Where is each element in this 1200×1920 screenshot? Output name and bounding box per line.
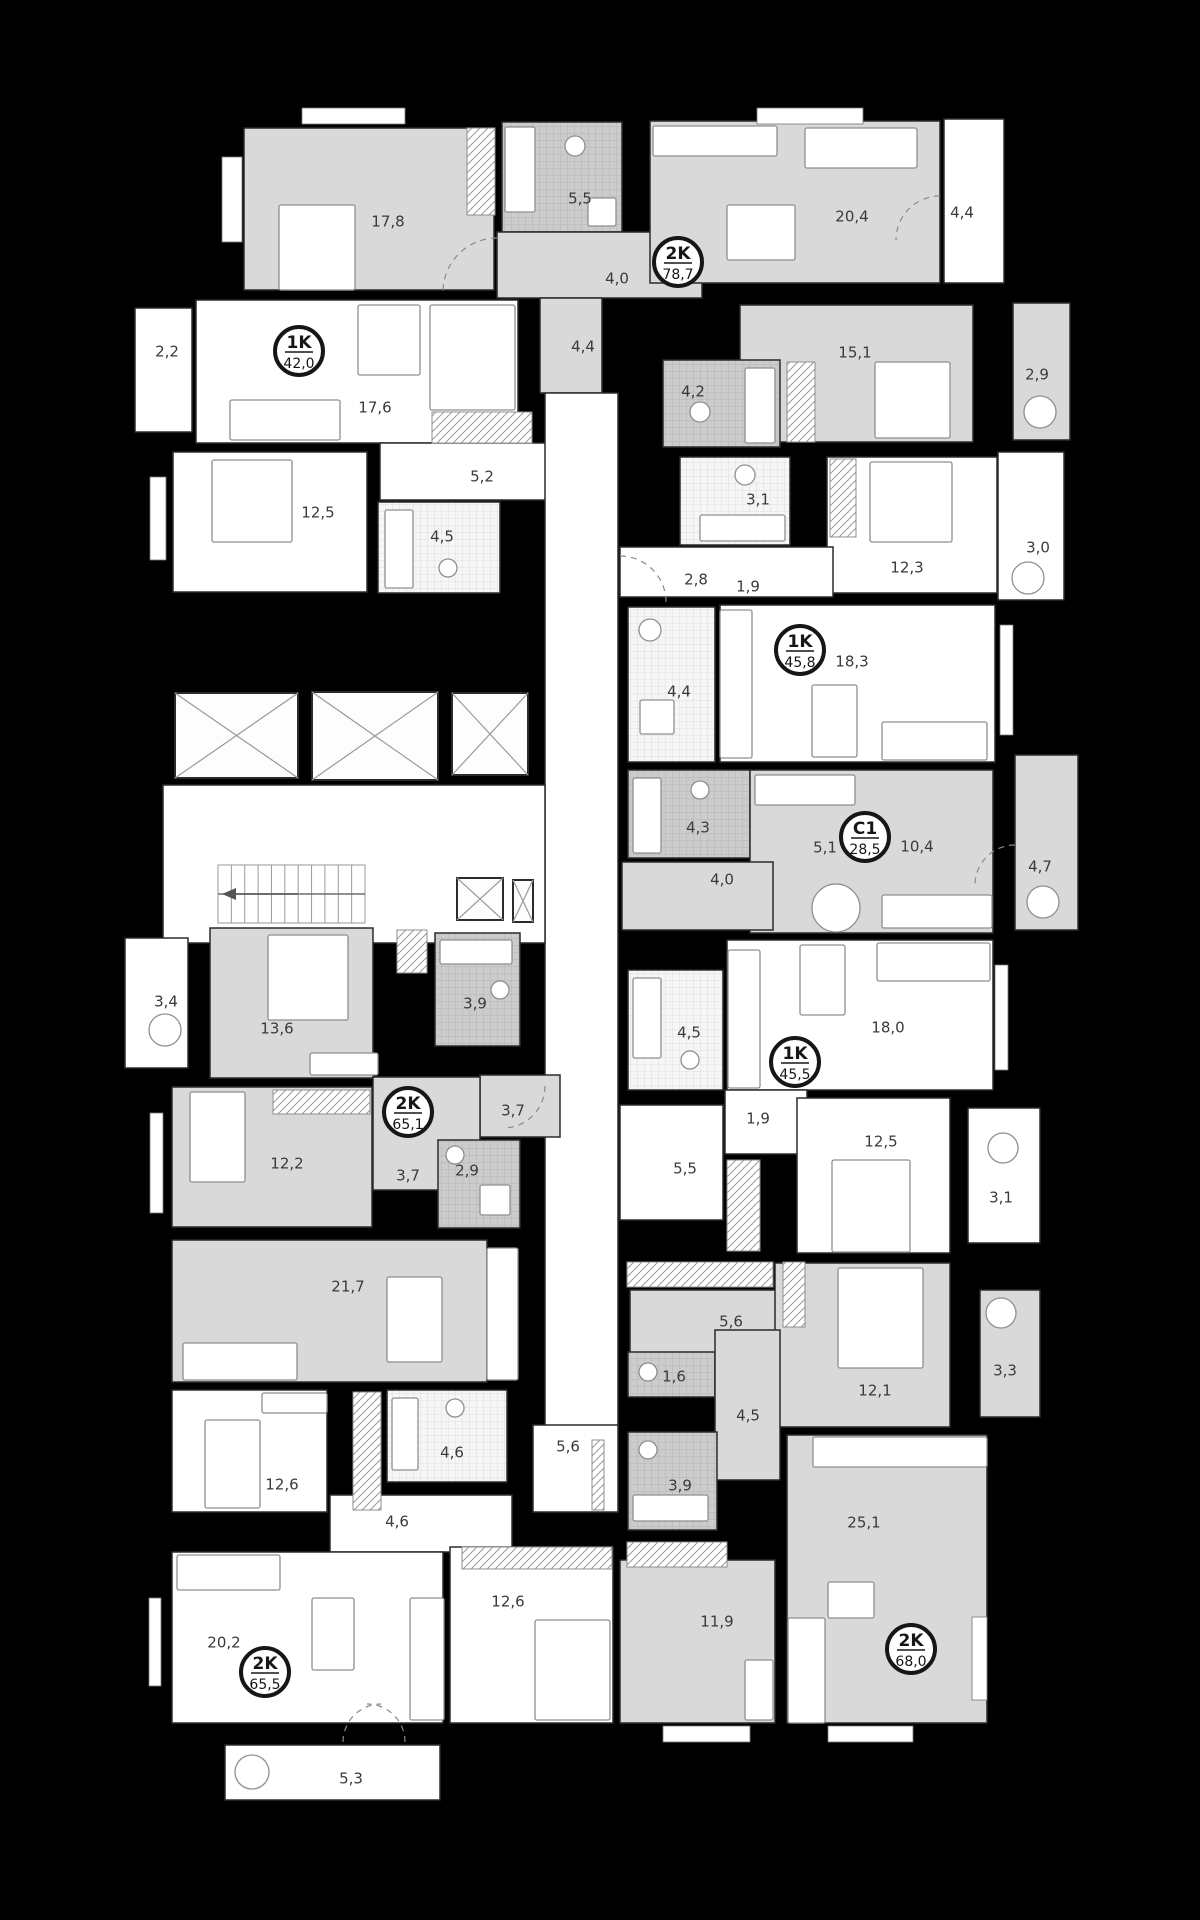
room-area-label: 2,2 [155,343,179,361]
furniture [870,462,952,542]
room-area-label: 3,9 [463,995,487,1013]
badge-area: 65,5 [249,1677,280,1693]
furniture [633,978,661,1058]
wardrobe [432,412,532,443]
furniture [640,700,674,734]
furniture [588,198,616,226]
furniture [480,1185,510,1215]
room-area-label: 4,4 [667,683,691,701]
wardrobe [462,1547,612,1569]
badge-area: 45,5 [779,1067,810,1083]
furniture [745,1660,773,1720]
furniture [639,1441,657,1459]
room-area-label: 5,6 [719,1313,743,1331]
room-area-label: 3,1 [746,491,770,509]
room-area-label: 4,5 [736,1407,760,1425]
apartment-badge: C128,5 [841,813,889,861]
apartment-badge: 2K68,0 [887,1625,935,1673]
room-area-label: 5,5 [673,1160,697,1178]
window [1000,625,1013,735]
room-area-label: 12,2 [270,1155,303,1173]
window [149,1598,161,1686]
room-area-label: 18,3 [835,653,868,671]
window [757,108,863,124]
room-area-label: 2,9 [455,1162,479,1180]
room-area-label: 3,3 [993,1362,1017,1380]
furniture [838,1268,923,1368]
room-area-label: 5,5 [568,190,592,208]
wardrobe [627,1542,727,1567]
furniture [1027,886,1059,918]
hall-4-0b [622,862,773,930]
room-area-label: 13,6 [260,1020,293,1038]
hall-5-5 [620,1105,723,1220]
floor-plan-canvas: 17,85,54,020,44,44,415,12,94,22,217,612,… [0,0,1200,1920]
room-area-label: 4,4 [571,338,595,356]
wardrobe [830,459,856,537]
badge-type: 1K [286,333,312,353]
badge-type: 1K [782,1044,808,1064]
wardrobe [783,1262,805,1327]
furniture [988,1133,1018,1163]
room-area-label: 4,0 [710,871,734,889]
room-area-label: 12,5 [301,504,334,522]
furniture [387,1277,442,1362]
furniture [653,126,777,156]
balcony-2-2 [135,308,192,432]
furniture [828,1582,874,1618]
room-area-label: 5,1 [813,839,837,857]
furniture [727,205,795,260]
room-area-label: 1,9 [746,1110,770,1128]
room-area-label: 2,8 [684,571,708,589]
room-area-label: 2,9 [1025,366,1049,384]
furniture [633,1495,708,1521]
furniture [491,981,509,999]
wardrobe [273,1090,370,1114]
wardrobe [627,1262,773,1287]
room-area-label: 12,5 [864,1133,897,1151]
furniture [720,610,752,758]
furniture [212,460,292,542]
room-area-label: 3,9 [668,1477,692,1495]
floor-plan: 17,85,54,020,44,44,415,12,94,22,217,612,… [0,0,1200,1920]
apartment-badge: 2K65,5 [241,1648,289,1696]
room-area-label: 1,9 [736,578,760,596]
furniture [813,1437,987,1467]
hall-4-5 [715,1330,780,1480]
room-area-label: 4,0 [605,270,629,288]
room-area-label: 17,6 [358,399,391,417]
room-area-label: 4,5 [677,1024,701,1042]
room-area-label: 4,2 [681,383,705,401]
badge-area: 68,0 [895,1654,926,1670]
furniture [235,1755,269,1789]
badge-area: 42,0 [283,356,314,372]
room-area-label: 3,0 [1026,539,1050,557]
furniture [149,1014,181,1046]
window [150,1113,163,1213]
furniture [177,1555,280,1590]
room-area-label: 15,1 [838,344,871,362]
apartment-badge: 1K42,0 [275,327,323,375]
furniture [728,950,760,1088]
window [828,1726,913,1742]
furniture [986,1298,1016,1328]
furniture [690,402,710,422]
furniture [565,136,585,156]
furniture [446,1399,464,1417]
window [663,1726,750,1742]
furniture [691,781,709,799]
room-area-label: 11,9 [700,1613,733,1631]
furniture [681,1051,699,1069]
furniture [205,1420,260,1508]
furniture [312,1598,354,1670]
furniture [268,935,348,1020]
furniture [190,1092,245,1182]
room-area-label: 4,7 [1028,858,1052,876]
wardrobe [353,1392,381,1510]
corridor [545,393,618,1512]
entry-2-8 [620,547,833,597]
hall-5-2 [380,443,548,500]
furniture [392,1398,418,1470]
furniture [505,127,535,212]
room-area-label: 18,0 [871,1019,904,1037]
furniture [439,559,457,577]
wardrobe [727,1160,760,1251]
room-area-label: 10,4 [900,838,933,856]
furniture [487,1248,518,1380]
furniture [262,1393,327,1413]
furniture [700,515,785,541]
room-area-label: 3,7 [396,1167,420,1185]
furniture [230,400,340,440]
badge-type: 2K [665,244,691,264]
furniture [877,943,990,981]
room-area-label: 12,6 [491,1593,524,1611]
badge-area: 28,5 [849,842,880,858]
furniture [633,778,661,853]
apartment-badge: 1K45,5 [771,1038,819,1086]
room-area-label: 1,6 [662,1368,686,1386]
furniture [882,895,992,928]
window [222,157,242,242]
apartment-badge: 1K45,8 [776,626,824,674]
furniture [800,945,845,1015]
room-area-label: 4,4 [950,204,974,222]
room-area-label: 25,1 [847,1514,880,1532]
furniture [639,619,661,641]
furniture [832,1160,910,1252]
window [150,477,166,560]
badge-type: 2K [898,1631,924,1651]
furniture [875,362,950,438]
room-area-label: 4,3 [686,819,710,837]
furniture [358,305,420,375]
room-area-label: 4,6 [440,1444,464,1462]
room-area-label: 5,2 [470,468,494,486]
furniture [882,722,987,760]
furniture [812,685,857,757]
balcony-3-1 [968,1108,1040,1243]
wardrobe [397,930,427,973]
furniture [440,940,512,964]
room-area-label: 5,6 [556,1438,580,1456]
room-area-label: 3,4 [154,993,178,1011]
window [302,108,405,124]
room-area-label: 20,4 [835,208,868,226]
furniture [385,510,413,588]
furniture [430,305,515,410]
furniture [745,368,775,443]
furniture [735,465,755,485]
room-area-label: 12,3 [890,559,923,577]
room-area-label: 4,5 [430,528,454,546]
wardrobe [467,128,495,215]
furniture [755,775,855,805]
furniture [1024,396,1056,428]
badge-type: C1 [853,819,877,839]
balcony-4-4 [944,119,1004,283]
room-area-label: 3,7 [501,1102,525,1120]
furniture [279,205,355,290]
furniture [1012,562,1044,594]
furniture [788,1618,825,1723]
room-area-label: 4,6 [385,1513,409,1531]
furniture [183,1343,297,1380]
room-area-label: 5,3 [339,1770,363,1788]
badge-type: 2K [252,1654,278,1674]
room-area-label: 21,7 [331,1278,364,1296]
furniture [805,128,917,168]
furniture [310,1053,378,1075]
furniture [410,1598,444,1720]
furniture [812,884,860,932]
wardrobe [787,362,815,442]
apartment-badge: 2K78,7 [654,238,702,286]
badge-area: 65,1 [392,1117,423,1133]
badge-area: 45,8 [784,655,815,671]
window [995,965,1008,1070]
badge-type: 1K [787,632,813,652]
room-area-label: 12,6 [265,1476,298,1494]
furniture [535,1620,610,1720]
window [972,1617,987,1700]
furniture [639,1363,657,1381]
room-area-label: 17,8 [371,213,404,231]
wardrobe [592,1440,604,1510]
apartment-badge: 2K65,1 [384,1088,432,1136]
room-area-label: 3,1 [989,1189,1013,1207]
badge-area: 78,7 [662,267,693,283]
room-area-label: 12,1 [858,1382,891,1400]
room-area-label: 20,2 [207,1634,240,1652]
badge-type: 2K [395,1094,421,1114]
